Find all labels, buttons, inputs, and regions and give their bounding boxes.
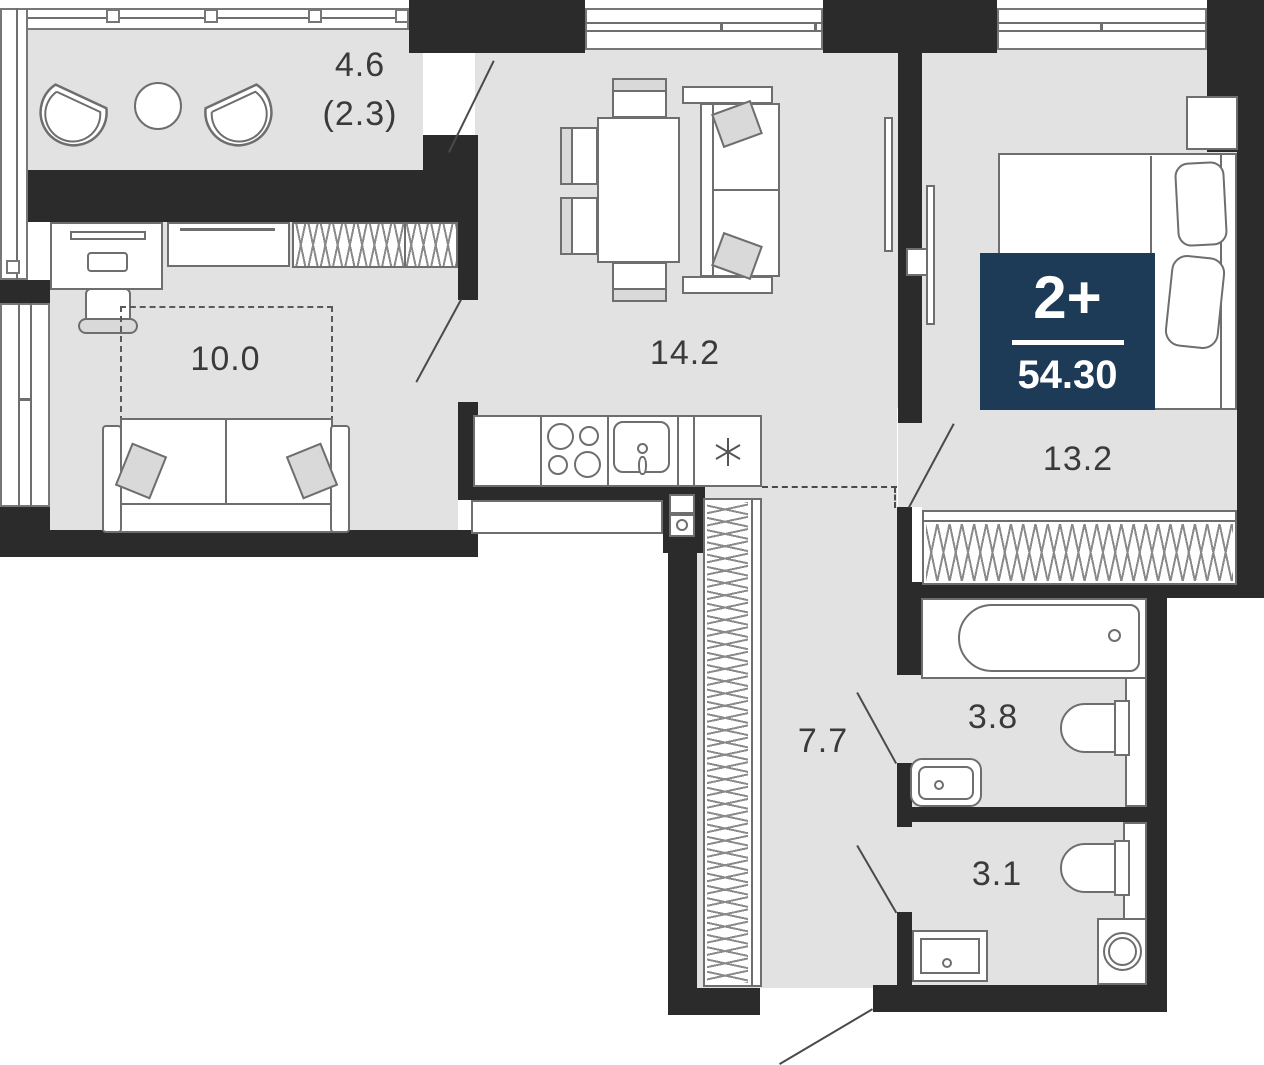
room-label-bedroom: 13.2	[1008, 440, 1148, 479]
living-window	[585, 8, 823, 50]
sofa-divider	[714, 189, 780, 191]
counter-divider	[677, 415, 679, 487]
room-label-kitchen-living: 14.2	[615, 334, 755, 373]
wall	[897, 807, 1167, 822]
sofa-arm	[682, 276, 773, 294]
window-line	[585, 22, 823, 24]
window-mullion	[720, 22, 723, 31]
wardrobe-divider	[404, 222, 406, 268]
wardrobe-icon	[292, 222, 458, 268]
tv-icon	[926, 185, 935, 325]
shelf-line	[180, 228, 275, 231]
glazing-line	[16, 8, 18, 280]
toilet-doorway	[897, 827, 912, 912]
counter-divider	[540, 415, 542, 487]
window-line	[585, 30, 823, 32]
toilet-tank	[1114, 700, 1130, 756]
stove-burner	[579, 426, 599, 446]
badge-area-total: 54.30	[1017, 355, 1117, 395]
washbasin-inner	[918, 766, 974, 800]
floor-plan: 4.6 (2.3) 10.0 14.2 13.2 7.7 3.8 3.1 2+ …	[0, 0, 1264, 1065]
entrance-door-swing	[779, 1008, 873, 1065]
tv-mount-niche	[906, 248, 928, 276]
wardrobe-hatch	[707, 502, 748, 983]
monitor-icon	[70, 231, 146, 240]
badge-divider	[1012, 340, 1124, 345]
wall	[823, 0, 997, 53]
toilet-icon	[1060, 703, 1116, 753]
zone-dashed-line	[894, 487, 896, 508]
bathroom-doorway	[897, 675, 912, 763]
glazing-mullion	[308, 9, 322, 23]
wall	[668, 988, 760, 1015]
window-mullion	[19, 398, 31, 401]
room-label-bathroom: 3.8	[938, 698, 1048, 737]
bedroom-doorway	[898, 423, 922, 507]
wall	[897, 912, 912, 988]
room-label-balcony-reduced: (2.3)	[290, 95, 430, 134]
basin-drain	[934, 780, 944, 790]
wall	[0, 530, 478, 557]
wardrobe-rail	[751, 498, 753, 987]
dining-table-icon	[597, 117, 680, 263]
wall	[458, 222, 478, 300]
room-label-bedroom-small: 10.0	[158, 340, 293, 379]
wall	[898, 50, 922, 423]
bed-pillow	[1163, 253, 1226, 350]
wall	[1237, 152, 1264, 598]
wall	[1147, 598, 1167, 1010]
wardrobe-hatch	[926, 524, 1233, 581]
glazing-mullion	[395, 9, 409, 23]
bed-pillow	[1174, 161, 1228, 248]
sofa-back	[110, 503, 342, 533]
keyboard-icon	[87, 252, 128, 272]
glazing-mullion	[204, 9, 218, 23]
area-badge: 2+ 54.30	[980, 253, 1155, 410]
boiler-icon	[676, 519, 688, 531]
toilet-tank	[1114, 840, 1130, 896]
chair-back	[560, 197, 573, 255]
wall	[0, 280, 50, 303]
toilet-icon	[1060, 843, 1116, 893]
stove-burner	[574, 451, 601, 478]
sofa-arm	[682, 86, 773, 104]
room10-window	[0, 303, 50, 507]
wall	[873, 985, 1167, 1012]
basin-drain	[942, 958, 952, 968]
room-label-toilet: 3.1	[942, 855, 1052, 894]
zone-dashed-line	[762, 486, 897, 488]
bathtub-drain	[1108, 629, 1121, 642]
window-line	[18, 303, 20, 507]
counter-divider	[693, 415, 695, 487]
window-line	[30, 303, 32, 507]
faucet-icon	[637, 443, 648, 454]
washbasin-inner	[920, 938, 980, 974]
stove-burner	[547, 423, 574, 450]
sofa-divider	[225, 418, 227, 507]
glazing-mullion	[6, 260, 20, 274]
duct-box	[669, 494, 695, 514]
round-table-icon	[134, 82, 182, 130]
chair-back	[612, 78, 667, 92]
chair-back	[612, 288, 667, 302]
window-mullion	[814, 22, 817, 31]
faucet-handle	[638, 456, 647, 475]
badge-rooms-label: 2+	[1033, 268, 1101, 328]
stove-burner	[548, 455, 568, 475]
washer-drum-inner	[1108, 937, 1137, 966]
wall	[897, 507, 912, 582]
glazing-mullion	[106, 9, 120, 23]
room-label-hallway: 7.7	[768, 722, 878, 761]
tv-icon	[884, 117, 893, 252]
chair-back	[560, 127, 573, 185]
wall	[28, 170, 478, 222]
room-label-balcony: 4.6	[300, 46, 420, 85]
fridge-icon	[713, 437, 743, 467]
counter-divider	[607, 415, 609, 487]
window-mullion	[1100, 22, 1103, 31]
duct-strip	[471, 500, 663, 534]
nightstand-icon	[1186, 96, 1238, 150]
wardrobe-rail	[922, 520, 1237, 522]
wall	[668, 553, 697, 988]
wall	[409, 0, 585, 53]
